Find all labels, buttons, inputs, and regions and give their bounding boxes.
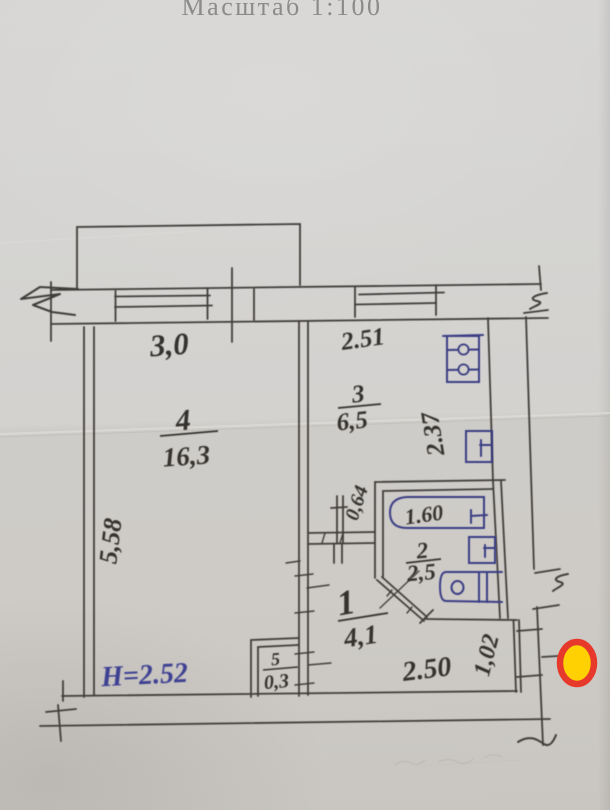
svg-text:5: 5 — [270, 649, 281, 670]
svg-text:1,02: 1,02 — [469, 632, 504, 679]
svg-text:6,5: 6,5 — [335, 406, 369, 436]
svg-text:4,1: 4,1 — [341, 619, 380, 654]
svg-text:5,58: 5,58 — [93, 517, 127, 566]
svg-text:4: 4 — [173, 403, 192, 437]
svg-text:1: 1 — [334, 582, 358, 623]
svg-text:16,3: 16,3 — [162, 439, 211, 472]
svg-text:2.37: 2.37 — [417, 409, 451, 459]
svg-text:3,0: 3,0 — [148, 326, 190, 364]
svg-text:0,64: 0,64 — [341, 483, 373, 523]
svg-text:2.51: 2.51 — [338, 323, 386, 356]
svg-text:0,3: 0,3 — [263, 670, 290, 694]
svg-text:3: 3 — [350, 380, 366, 408]
svg-text:2,5: 2,5 — [405, 559, 437, 586]
svg-text:Н=2.52: Н=2.52 — [99, 658, 188, 694]
svg-text:2.50: 2.50 — [400, 651, 453, 688]
svg-text:1.60: 1.60 — [403, 500, 445, 530]
